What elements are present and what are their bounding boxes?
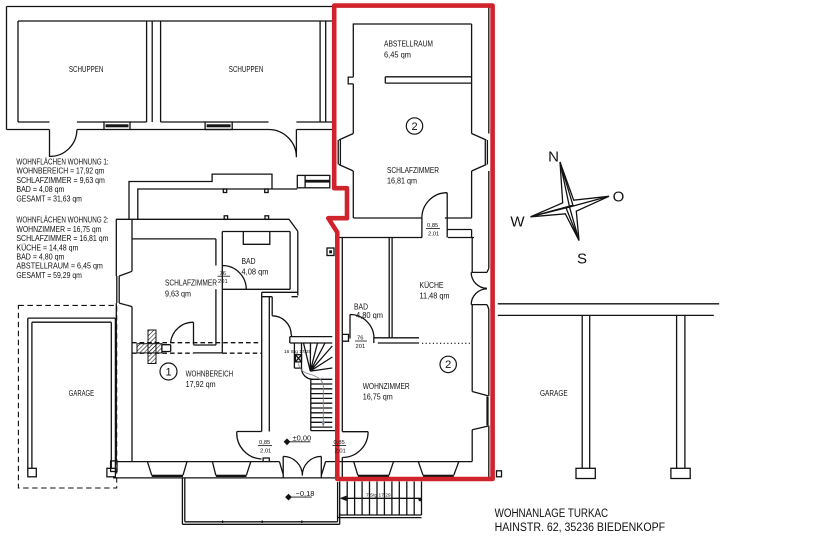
svg-text:ABSTELLRAUM: ABSTELLRAUM xyxy=(384,39,433,48)
svg-text:2,01: 2,01 xyxy=(335,448,346,454)
svg-text:2: 2 xyxy=(445,359,451,371)
svg-text:17,92 qm: 17,92 qm xyxy=(186,380,216,389)
svg-text:4,80 qm: 4,80 qm xyxy=(356,311,383,320)
svg-text:SCHUPPEN: SCHUPPEN xyxy=(69,65,104,74)
svg-text:11,48 qm: 11,48 qm xyxy=(420,292,450,301)
svg-text:9,63 qm: 9,63 qm xyxy=(165,289,191,298)
svg-text:16,75 qm: 16,75 qm xyxy=(363,393,393,402)
svg-text:2,01: 2,01 xyxy=(260,448,271,454)
svg-text:GESAMT = 31,63 qm: GESAMT = 31,63 qm xyxy=(16,193,82,203)
svg-text:KÜCHE: KÜCHE xyxy=(420,281,444,290)
svg-text:16,81 qm: 16,81 qm xyxy=(387,176,417,185)
svg-text:2,01: 2,01 xyxy=(428,231,439,237)
svg-text:BAD: BAD xyxy=(242,257,256,266)
svg-text:±0,00: ±0,00 xyxy=(293,434,312,443)
svg-text:16 Stg 17/25: 16 Stg 17/25 xyxy=(284,349,312,355)
svg-text:201: 201 xyxy=(356,344,366,350)
svg-text:GESAMT = 59,29 qm: GESAMT = 59,29 qm xyxy=(16,270,82,280)
svg-text:7 Stg 17/29: 7 Stg 17/29 xyxy=(366,492,391,498)
svg-text:N: N xyxy=(548,149,559,166)
svg-text:SCHUPPEN: SCHUPPEN xyxy=(229,65,264,74)
svg-text:W: W xyxy=(510,214,525,231)
svg-text:4,08 qm: 4,08 qm xyxy=(242,268,269,277)
svg-text:201: 201 xyxy=(218,279,228,285)
svg-text:1: 1 xyxy=(165,366,171,378)
svg-text:S: S xyxy=(577,251,587,268)
svg-text:WOHNBEREICH: WOHNBEREICH xyxy=(186,370,234,379)
svg-text:O: O xyxy=(613,189,625,206)
svg-text:HAINSTR. 62, 35236 BIEDENKOPF: HAINSTR. 62, 35236 BIEDENKOPF xyxy=(495,522,665,534)
svg-text:SCHLAFZIMMER: SCHLAFZIMMER xyxy=(387,166,439,175)
svg-text:WOHNANLAGE TURKAC: WOHNANLAGE TURKAC xyxy=(495,508,608,520)
svg-text:WOHNZIMMER: WOHNZIMMER xyxy=(363,382,410,391)
svg-text:−0,18: −0,18 xyxy=(296,489,315,498)
svg-text:2: 2 xyxy=(411,121,417,133)
svg-text:6,45 qm: 6,45 qm xyxy=(384,51,411,60)
svg-text:SCHLAFZIMMER: SCHLAFZIMMER xyxy=(165,279,217,288)
svg-text:GARAGE: GARAGE xyxy=(69,389,94,398)
svg-text:GARAGE: GARAGE xyxy=(540,389,568,398)
